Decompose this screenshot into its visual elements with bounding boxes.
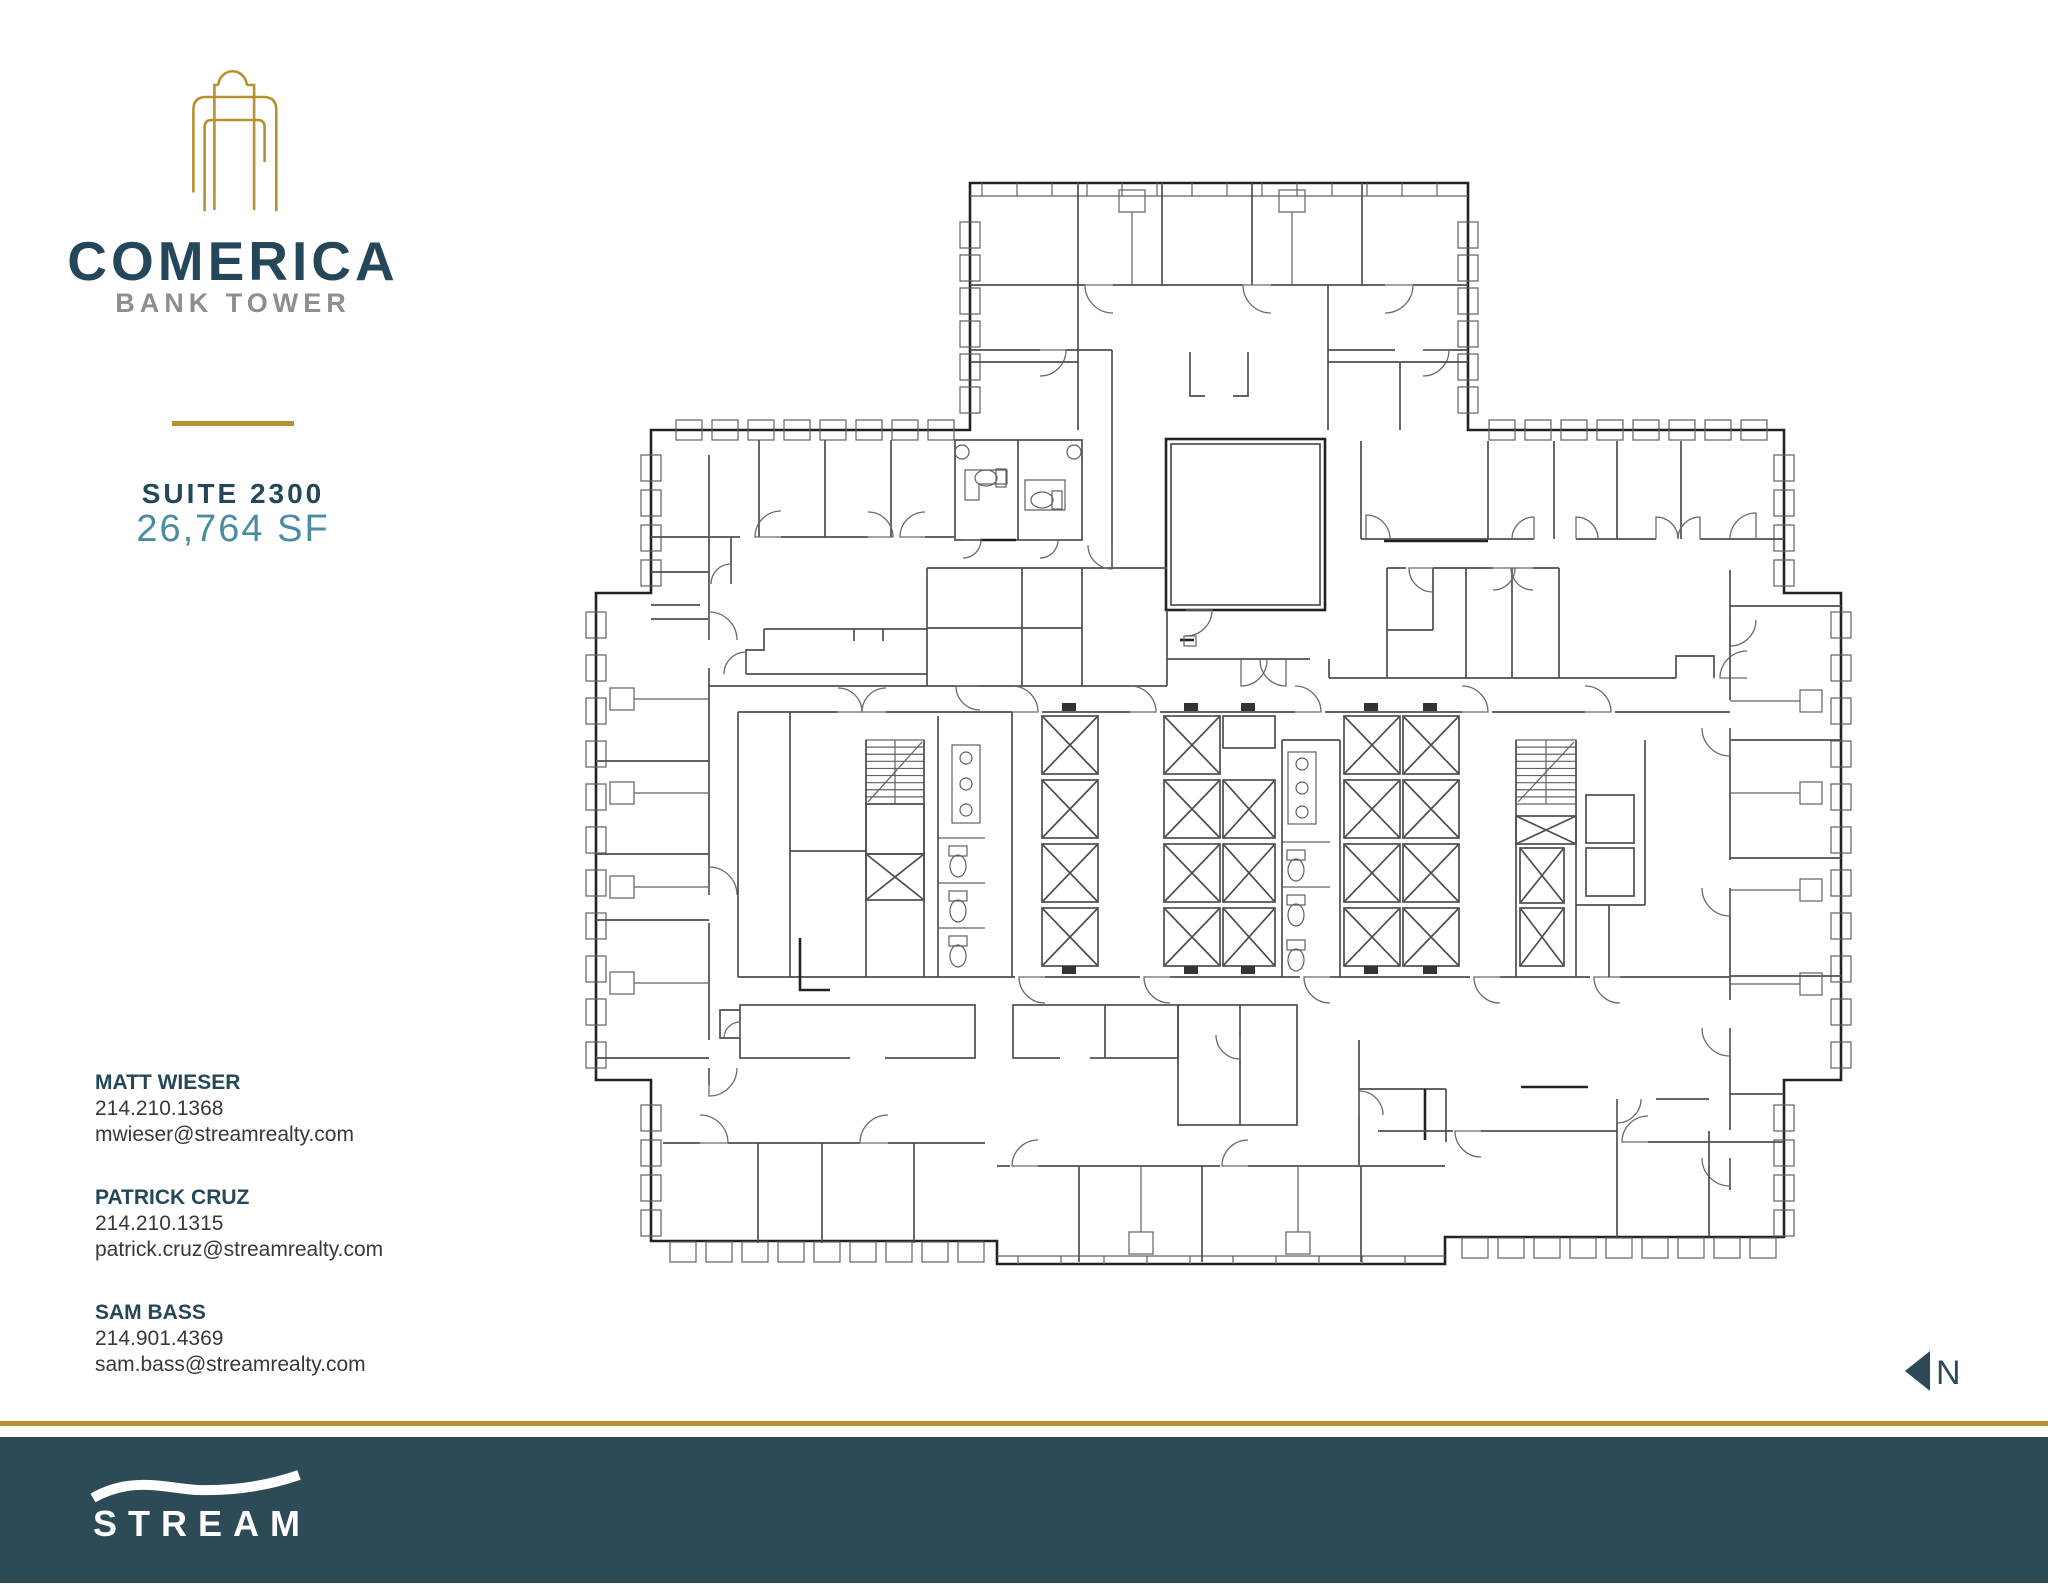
svg-text:N: N bbox=[1936, 1354, 1960, 1392]
